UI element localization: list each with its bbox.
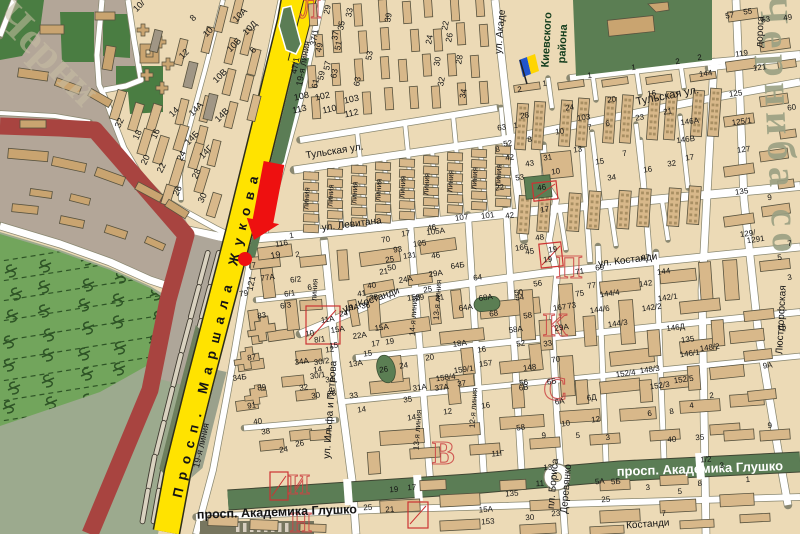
svg-text:23: 23 [635,112,646,122]
svg-text:49: 49 [313,42,325,53]
svg-text:16: 16 [477,344,488,354]
svg-text:30: 30 [431,56,443,67]
svg-text:35: 35 [695,433,705,443]
svg-text:линия: линия [421,173,432,196]
svg-text:144: 144 [656,266,671,277]
svg-text:46: 46 [537,182,548,192]
svg-text:24: 24 [339,308,350,318]
svg-text:24: 24 [399,360,410,370]
svg-text:29: 29 [415,292,426,302]
svg-text:15: 15 [329,340,340,350]
svg-text:42: 42 [505,152,516,162]
svg-text:19: 19 [389,485,399,495]
svg-text:40: 40 [253,416,264,426]
svg-text:30: 30 [525,513,535,523]
svg-text:21: 21 [379,266,390,276]
svg-text:83: 83 [257,310,268,320]
svg-text:33: 33 [349,390,360,400]
svg-text:53: 53 [761,14,772,24]
svg-text:30: 30 [311,390,322,400]
svg-text:Л: Л [300,0,321,25]
svg-text:41: 41 [357,288,368,298]
svg-text:142: 142 [638,278,653,289]
svg-text:37: 37 [329,30,341,41]
svg-text:34: 34 [607,172,618,182]
svg-text:43: 43 [525,158,536,168]
svg-text:127: 127 [736,144,751,155]
svg-text:14: 14 [407,412,418,422]
svg-text:91: 91 [247,400,258,410]
svg-text:26: 26 [379,364,390,374]
svg-text:53: 53 [363,50,375,61]
svg-text:125: 125 [728,88,743,99]
svg-text:37: 37 [457,378,468,388]
svg-text:135: 135 [734,186,749,197]
svg-text:29: 29 [321,4,333,15]
svg-text:38: 38 [261,426,272,436]
svg-text:70: 70 [551,354,562,364]
svg-text:1/2: 1/2 [700,455,712,465]
svg-text:48: 48 [535,232,546,242]
svg-text:63: 63 [351,76,363,87]
svg-text:24: 24 [423,34,435,45]
svg-text:144: 144 [698,68,713,79]
svg-text:11Г: 11Г [491,449,505,459]
svg-text:26: 26 [295,438,306,448]
svg-text:73: 73 [567,300,578,310]
svg-text:12: 12 [591,414,602,424]
svg-text:24: 24 [279,444,290,454]
svg-text:6/2: 6/2 [290,274,303,285]
svg-text:53: 53 [515,172,526,182]
svg-text:49: 49 [783,12,794,22]
svg-text:33: 33 [543,338,554,348]
svg-text:52: 52 [516,338,527,348]
svg-text:119: 119 [735,48,749,59]
svg-text:6/3: 6/3 [280,300,293,311]
svg-text:67: 67 [641,252,652,262]
svg-text:6Д: 6Д [586,392,598,402]
svg-text:15: 15 [363,348,374,358]
svg-text:13: 13 [543,463,553,473]
svg-text:19: 19 [543,254,554,264]
svg-text:36: 36 [361,300,372,310]
svg-text:17: 17 [540,204,551,214]
svg-text:57: 57 [725,10,736,20]
svg-text:10: 10 [551,166,562,176]
svg-text:25: 25 [363,503,373,513]
svg-text:79: 79 [239,288,250,298]
svg-text:89: 89 [257,382,268,392]
svg-text:40: 40 [367,280,378,290]
svg-text:167: 167 [552,302,567,313]
svg-text:28: 28 [520,110,531,120]
svg-text:линия: линия [325,184,336,207]
svg-text:64: 64 [473,272,484,282]
svg-text:20: 20 [425,352,436,362]
svg-text:9А: 9А [762,360,774,370]
svg-text:линия: линия [349,181,360,204]
svg-text:32: 32 [435,76,447,87]
svg-text:63: 63 [328,68,340,79]
svg-text:153: 153 [481,517,495,527]
svg-text:16: 16 [647,88,658,98]
svg-text:13: 13 [573,144,584,154]
svg-text:71: 71 [575,266,586,276]
svg-text:58: 58 [523,310,534,320]
svg-text:15: 15 [595,156,606,166]
svg-text:166: 166 [514,242,529,253]
svg-text:16: 16 [481,400,492,410]
svg-text:63: 63 [497,122,508,132]
svg-text:93: 93 [393,244,404,254]
svg-text:28: 28 [327,388,338,398]
svg-text:6В: 6В [518,382,529,392]
svg-text:35: 35 [403,394,414,404]
svg-text:6/1: 6/1 [284,288,297,299]
svg-text:15А: 15А [478,504,493,514]
svg-text:25: 25 [601,495,611,505]
svg-text:70: 70 [381,234,392,244]
svg-text:В: В [432,435,455,472]
svg-text:21: 21 [385,505,395,515]
svg-text:линия: линия [373,178,384,201]
svg-text:линия: линия [397,175,408,198]
svg-text:10: 10 [555,126,566,136]
svg-text:42: 42 [505,210,516,220]
svg-text:17: 17 [685,152,696,162]
svg-text:51: 51 [332,40,344,51]
svg-text:121: 121 [752,62,767,73]
svg-text:14: 14 [357,404,368,414]
svg-text:69: 69 [595,262,606,272]
svg-text:34: 34 [325,374,336,384]
svg-text:25: 25 [423,284,434,294]
svg-text:38: 38 [369,292,380,302]
svg-text:линия: линия [469,167,480,190]
svg-text:68: 68 [489,308,500,318]
svg-text:15: 15 [777,322,788,332]
svg-text:17: 17 [401,228,412,238]
svg-text:39: 39 [382,12,394,23]
svg-text:54: 54 [515,292,526,302]
svg-text:61: 61 [309,78,321,89]
svg-text:5Б: 5Б [611,477,621,487]
svg-text:10: 10 [561,418,572,428]
svg-text:6Б: 6Б [546,376,557,386]
svg-text:25: 25 [385,254,396,264]
svg-text:77: 77 [587,280,598,290]
svg-text:35: 35 [335,20,347,31]
svg-text:34: 34 [457,88,469,99]
svg-text:32: 32 [299,382,310,392]
svg-text:135: 135 [505,489,519,499]
svg-text:20: 20 [607,94,618,104]
svg-text:22: 22 [439,20,451,31]
svg-text:55: 55 [743,6,754,16]
svg-text:района: района [556,23,570,64]
svg-text:24: 24 [565,102,576,112]
svg-text:19: 19 [385,336,396,346]
svg-text:33: 33 [343,7,355,18]
svg-text:58: 58 [516,422,527,432]
svg-text:103: 103 [576,112,591,123]
svg-text:52: 52 [503,138,514,148]
svg-text:60: 60 [787,102,798,112]
svg-text:157: 157 [478,358,493,369]
svg-text:8/1: 8/1 [314,334,327,345]
svg-text:46: 46 [431,250,442,260]
svg-text:56: 56 [533,278,544,288]
svg-text:12: 12 [443,406,454,416]
svg-text:75: 75 [575,288,586,298]
svg-text:11: 11 [535,479,544,489]
svg-text:107: 107 [454,212,469,223]
svg-text:22: 22 [495,182,506,192]
svg-text:101: 101 [480,210,495,221]
svg-text:5А: 5А [595,477,606,487]
svg-text:26: 26 [443,32,455,43]
svg-text:148: 148 [522,362,537,373]
svg-text:23: 23 [551,509,561,519]
svg-text:17: 17 [371,338,382,348]
svg-text:131: 131 [402,250,417,261]
svg-text:40: 40 [667,435,677,445]
svg-text:линия: линия [301,187,312,210]
svg-text:31: 31 [435,292,446,302]
svg-text:28: 28 [453,54,465,65]
svg-text:19: 19 [270,249,282,261]
svg-text:И: И [288,470,310,501]
svg-text:17: 17 [407,483,417,493]
svg-text:линия: линия [445,170,456,193]
svg-text:19: 19 [548,244,559,254]
svg-text:135: 135 [680,334,695,345]
svg-text:87: 87 [247,352,258,362]
svg-text:31: 31 [543,152,554,162]
svg-text:16: 16 [643,164,654,174]
svg-text:32: 32 [667,158,678,168]
svg-text:105: 105 [412,238,427,249]
svg-text:6А: 6А [554,396,566,406]
svg-text:21: 21 [663,106,674,116]
